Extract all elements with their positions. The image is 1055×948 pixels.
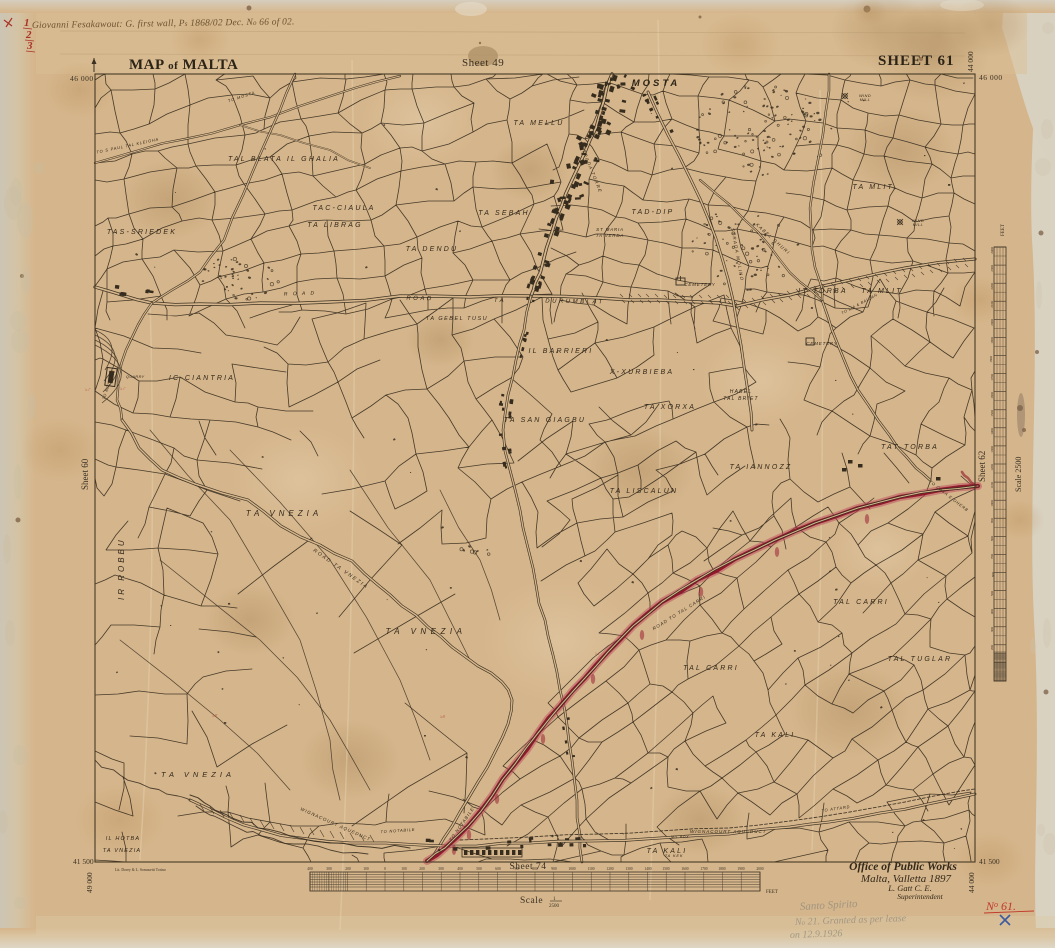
- svg-text:1500: 1500: [990, 410, 994, 417]
- svg-text:TA VERDA: TA VERDA: [596, 233, 624, 238]
- svg-text:FEET: FEET: [766, 890, 778, 895]
- svg-text:TA VNEZIA: TA VNEZIA: [103, 848, 142, 854]
- svg-text:TAS-SRIEDEK: TAS-SRIEDEK: [107, 229, 177, 236]
- svg-text:1100: 1100: [587, 867, 594, 871]
- svg-text:DURUMBLAT: DURUMBLAT: [545, 298, 604, 305]
- svg-text:3: 3: [26, 40, 33, 52]
- svg-text:2300: 2300: [990, 265, 994, 272]
- svg-text:TAL TUGLAR: TAL TUGLAR: [888, 656, 953, 663]
- svg-text:MIL BOX: MIL BOX: [671, 835, 689, 839]
- svg-text:TAL BRIET: TAL BRIET: [723, 396, 759, 402]
- svg-text:1300: 1300: [990, 446, 994, 453]
- svg-text:TAT TORBA: TAT TORBA: [881, 444, 939, 451]
- svg-text:44 000: 44 000: [967, 872, 976, 893]
- svg-text:44 000: 44 000: [966, 51, 975, 72]
- svg-text:Scale: Scale: [520, 896, 543, 906]
- svg-text:TA LIBRAG: TA LIBRAG: [307, 222, 363, 229]
- svg-text:300: 300: [438, 867, 444, 871]
- svg-text:Lit. Dorey & L. Somasetti Tor: Lit. Dorey & L. Somasetti Torino: [115, 868, 166, 872]
- svg-text:1700: 1700: [700, 867, 707, 871]
- svg-text:IR ROBBU: IR ROBBU: [117, 537, 126, 600]
- svg-text:400: 400: [457, 867, 463, 871]
- svg-text:TAC-CIAULA: TAC-CIAULA: [312, 205, 375, 212]
- svg-text:600: 600: [991, 572, 995, 577]
- svg-text:600: 600: [495, 867, 501, 871]
- svg-text:46 000: 46 000: [979, 73, 1003, 82]
- svg-text:700: 700: [513, 867, 519, 871]
- svg-text:QUARRY: QUARRY: [126, 375, 145, 379]
- svg-text:Sheet 62: Sheet 62: [977, 451, 987, 482]
- svg-text:IL HOTBA: IL HOTBA: [106, 836, 141, 842]
- svg-text:1900: 1900: [737, 867, 744, 871]
- svg-text:TA MELLU: TA MELLU: [513, 120, 564, 127]
- svg-text:1400: 1400: [644, 867, 651, 871]
- svg-text:400: 400: [990, 609, 994, 614]
- svg-text:HABEL: HABEL: [730, 389, 752, 395]
- svg-text:1700: 1700: [990, 374, 994, 381]
- svg-text:TA VNEZIA: TA VNEZIA: [161, 770, 235, 779]
- svg-text:2400: 2400: [990, 247, 994, 254]
- svg-text:1500: 1500: [662, 867, 669, 871]
- svg-text:Superintendent: Superintendent: [897, 892, 943, 901]
- svg-text:X-XURBIEBA: X-XURBIEBA: [609, 369, 674, 376]
- svg-text:1800: 1800: [718, 867, 725, 871]
- svg-text:MAP of MALTA: MAP of MALTA: [129, 57, 238, 73]
- svg-text:46 000: 46 000: [70, 74, 94, 83]
- svg-text:SHEET 61: SHEET 61: [878, 53, 955, 69]
- svg-text:MOSTA: MOSTA: [632, 78, 681, 89]
- svg-text:100: 100: [401, 867, 407, 871]
- svg-text:300: 300: [990, 627, 994, 632]
- svg-text:700: 700: [990, 554, 994, 559]
- svg-text:TA LISCALUN: TA LISCALUN: [610, 488, 679, 495]
- svg-text:500: 500: [990, 591, 994, 596]
- svg-text:400: 400: [307, 867, 313, 871]
- svg-text:1100: 1100: [990, 482, 994, 489]
- svg-text:900: 900: [990, 518, 994, 523]
- svg-text:1300: 1300: [625, 867, 632, 871]
- svg-text:200: 200: [345, 867, 351, 871]
- svg-text:41 500: 41 500: [979, 857, 1000, 866]
- svg-text:TA SAN GIAGBU: TA SAN GIAGBU: [504, 417, 586, 424]
- svg-text:800: 800: [990, 536, 994, 541]
- svg-text:No 61.: No 61.: [985, 899, 1016, 913]
- svg-text:WIGNACOURT AQUEDUCT: WIGNACOURT AQUEDUCT: [690, 829, 767, 834]
- svg-text:200: 200: [990, 645, 994, 650]
- svg-text:MILL: MILL: [913, 223, 923, 227]
- svg-text:TA XORXA: TA XORXA: [644, 404, 696, 411]
- svg-text:1200: 1200: [606, 867, 613, 871]
- svg-text:TAL BLATA IL GHALIA: TAL BLATA IL GHALIA: [228, 156, 340, 163]
- svg-text:TAL CARRI: TAL CARRI: [833, 599, 889, 606]
- svg-text:IT-TORBA: IT-TORBA: [798, 288, 848, 295]
- svg-text:Sheet 60: Sheet 60: [80, 458, 90, 490]
- svg-text:100: 100: [363, 867, 369, 871]
- svg-text:1000: 1000: [568, 867, 575, 871]
- svg-text:1600: 1600: [990, 392, 994, 399]
- svg-text:IL BARRIERI: IL BARRIERI: [529, 348, 594, 355]
- svg-text:200: 200: [419, 867, 425, 871]
- svg-text:TA SEBAH: TA SEBAH: [478, 210, 529, 217]
- svg-text:0: 0: [384, 867, 386, 871]
- svg-text:CEMETERY: CEMETERY: [684, 282, 715, 287]
- svg-text:57': 57': [120, 387, 127, 392]
- svg-text:51: 51: [595, 652, 600, 657]
- svg-text:57': 57': [85, 388, 92, 393]
- svg-text:TA VNEZIA: TA VNEZIA: [386, 627, 467, 636]
- svg-text:Scale 2500: Scale 2500: [1014, 457, 1023, 492]
- svg-text:1: 1: [24, 17, 30, 29]
- svg-text:TA VNEZIA: TA VNEZIA: [246, 509, 322, 518]
- svg-text:TA KALI: TA KALI: [755, 732, 796, 739]
- svg-text:TAD-DIP: TAD-DIP: [632, 209, 675, 216]
- svg-text:TA GEBEL TUSU: TA GEBEL TUSU: [426, 316, 488, 322]
- svg-text:2500: 2500: [549, 904, 560, 909]
- svg-text:2100: 2100: [990, 301, 994, 308]
- svg-text:1000: 1000: [990, 500, 994, 507]
- svg-text:IC-CIANTRIA: IC-CIANTRIA: [169, 375, 235, 382]
- svg-text:ROAD: ROAD: [406, 296, 433, 302]
- svg-text:2200: 2200: [990, 283, 994, 290]
- svg-text:900: 900: [551, 867, 557, 871]
- svg-text:58: 58: [440, 715, 446, 720]
- svg-text:58': 58': [212, 714, 219, 719]
- svg-text:2000: 2000: [756, 867, 763, 871]
- svg-text:TAL CARRI: TAL CARRI: [683, 665, 739, 672]
- svg-text:Office of Public Works: Office of Public Works: [849, 861, 957, 873]
- svg-text:1900: 1900: [990, 337, 994, 344]
- svg-text:1200: 1200: [990, 464, 994, 471]
- svg-text:1400: 1400: [990, 428, 994, 435]
- svg-text:ST MARIA: ST MARIA: [596, 227, 624, 232]
- svg-text:Sheet 49: Sheet 49: [462, 57, 504, 69]
- svg-text:1800: 1800: [989, 356, 993, 363]
- svg-text:41 500: 41 500: [73, 857, 94, 866]
- svg-text:TA KEK: TA KEK: [665, 853, 684, 858]
- svg-text:TA: TA: [494, 298, 506, 304]
- svg-text:FEET: FEET: [1001, 224, 1006, 236]
- svg-text:300: 300: [326, 867, 332, 871]
- svg-text:500: 500: [476, 867, 482, 871]
- svg-text:R O A D: R O A D: [284, 290, 316, 297]
- svg-text:800: 800: [532, 867, 538, 871]
- svg-text:TA DENDU: TA DENDU: [406, 246, 459, 253]
- svg-text:1600: 1600: [681, 867, 688, 871]
- svg-text:CEMETERY: CEMETERY: [806, 341, 837, 346]
- svg-text:on 12.9.1926: on 12.9.1926: [790, 928, 843, 941]
- svg-text:MILL: MILL: [860, 98, 870, 102]
- svg-text:TA MLIT: TA MLIT: [861, 288, 902, 295]
- svg-text:TA MLIT.: TA MLIT.: [853, 184, 898, 191]
- svg-text:49 000: 49 000: [85, 872, 94, 893]
- svg-text:2000: 2000: [990, 319, 994, 326]
- svg-text:TA IANNOZZ: TA IANNOZZ: [730, 464, 793, 471]
